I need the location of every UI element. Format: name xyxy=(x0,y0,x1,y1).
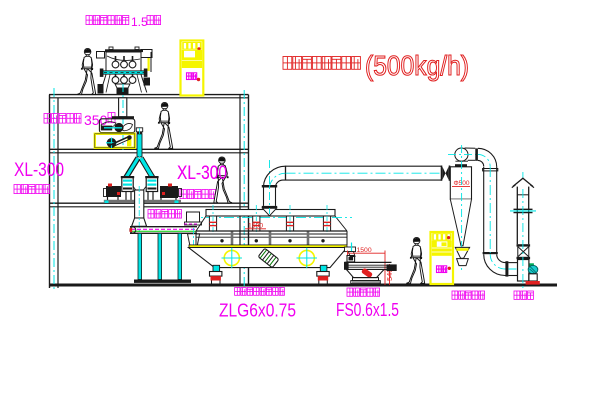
svg-text:XL-300: XL-300 xyxy=(177,163,227,184)
svg-text:(500kg/h): (500kg/h) xyxy=(365,50,469,81)
svg-text:1.5: 1.5 xyxy=(131,15,148,29)
svg-text:ZLG6x0.75: ZLG6x0.75 xyxy=(219,300,296,321)
svg-text:FS0.6x1.5: FS0.6x1.5 xyxy=(336,299,399,320)
svg-text:1500: 1500 xyxy=(357,247,372,254)
svg-text:XL-300: XL-300 xyxy=(14,160,64,181)
svg-text:1500: 1500 xyxy=(248,223,263,230)
